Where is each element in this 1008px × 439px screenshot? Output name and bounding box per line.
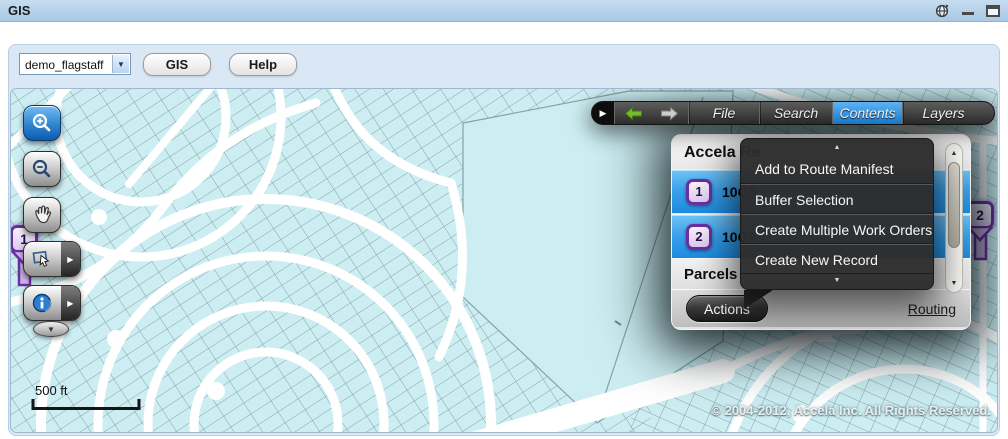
map-tab-bar: ▶ File Search Contents Layers [591,101,995,125]
tabbar-history-nav [614,102,688,124]
application-window: GIS demo_flagstaff ▼ GIS Help [0,0,1008,439]
play-icon: ▶ [600,108,607,119]
select-tool-button[interactable]: ▶ [23,241,81,277]
chevron-down-icon: ▼ [47,325,55,334]
tabbar-expand-button[interactable]: ▶ [592,102,614,124]
tab-layers[interactable]: Layers [902,102,984,124]
toolbar-collapse-button[interactable]: ▼ [33,321,69,337]
menu-item-buffer-selection[interactable]: Buffer Selection [741,184,933,214]
scroll-down-icon[interactable]: ▼ [946,276,962,290]
identify-tool-expand-arrow-icon[interactable]: ▶ [61,286,80,320]
result-row-2-badge: 2 [686,224,712,250]
scale-label: 500 ft [35,383,143,398]
select-dropdown-arrow-icon[interactable]: ▼ [112,55,129,73]
result-row-1-badge: 1 [686,179,712,205]
zoom-out-icon [31,158,53,180]
menu-item-add-to-route-manifest[interactable]: Add to Route Manifest [741,154,933,184]
help-button[interactable]: Help [229,53,297,76]
menu-scroll-down-icon[interactable]: ▼ [741,274,933,287]
gis-button[interactable]: GIS [143,53,211,76]
identify-tool-button[interactable]: ▶ [23,285,81,321]
menu-scroll-up-icon[interactable]: ▲ [741,141,933,154]
context-menu-tail [744,290,773,309]
zoom-in-icon [31,112,53,134]
zoom-out-button[interactable] [23,151,61,187]
tab-contents[interactable]: Contents [832,102,902,124]
zoom-in-button[interactable] [23,105,61,141]
routing-link[interactable]: Routing [908,301,956,317]
maximize-button[interactable] [986,5,1000,17]
pan-hand-icon [31,204,53,226]
back-arrow-icon[interactable] [624,106,643,121]
window-title: GIS [8,3,30,18]
select-tool-expand-arrow-icon[interactable]: ▶ [61,242,80,276]
workspace-select[interactable]: demo_flagstaff ▼ [19,53,131,75]
actions-context-menu: ▲ Add to Route Manifest Buffer Selection… [740,138,934,290]
scale-line [31,398,143,412]
scale-bar: 500 ft [31,383,143,417]
window-titlebar: GIS [0,0,1008,22]
map-viewport: 500 ft © 2004-2012, Accela Inc. All Righ… [10,88,998,433]
callout-pointer [817,331,837,342]
minimize-button[interactable] [962,4,974,18]
results-panel-footer: Actions Routing [672,289,970,327]
scroll-up-icon[interactable]: ▲ [946,146,962,160]
tab-search[interactable]: Search [759,102,832,124]
select-icon [31,249,53,269]
menu-item-create-new-record[interactable]: Create New Record [741,244,933,274]
gis-app-panel: demo_flagstaff ▼ GIS Help [8,44,1000,436]
forward-arrow-icon[interactable] [660,106,679,121]
tab-file[interactable]: File [688,102,759,124]
map-copyright: © 2004-2012, Accela Inc. All Rights Rese… [711,403,991,418]
results-scrollbar[interactable]: ▲ ▼ [945,143,963,293]
workspace-select-value: demo_flagstaff [25,58,104,72]
info-icon [31,292,53,314]
globe-icon[interactable] [935,3,950,18]
pan-button[interactable] [23,197,61,233]
menu-item-create-multiple-work-orders[interactable]: Create Multiple Work Orders [741,214,933,244]
scrollbar-thumb[interactable] [948,162,960,248]
